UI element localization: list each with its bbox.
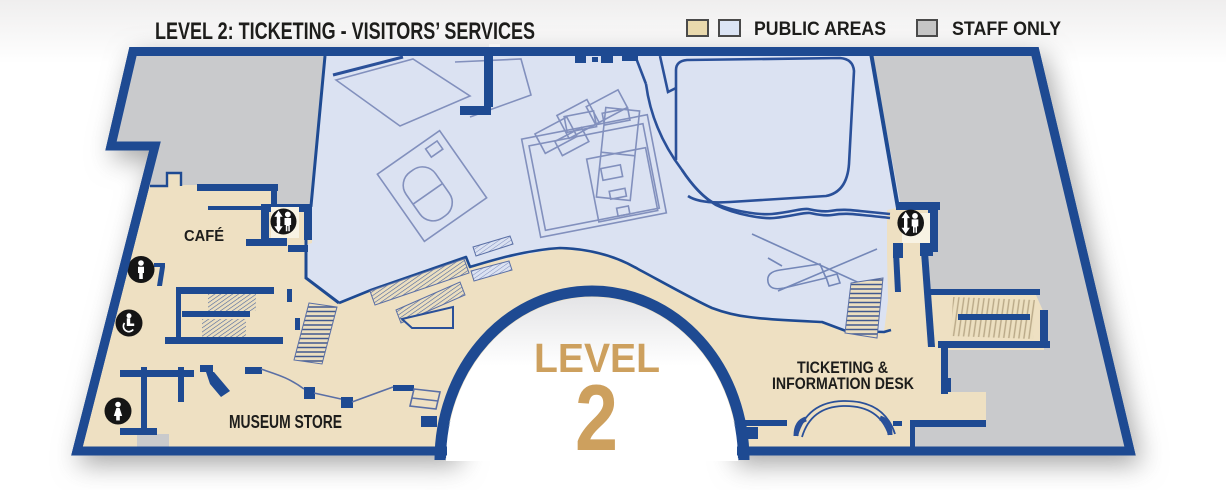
svg-text:MUSEUM STORE: MUSEUM STORE [229, 412, 342, 432]
svg-text:2: 2 [575, 365, 618, 470]
svg-text:INFORMATION DESK: INFORMATION DESK [772, 374, 915, 393]
svg-text:LEVEL 2: TICKETING - VISITORS’: LEVEL 2: TICKETING - VISITORS’ SERVICES [155, 18, 535, 45]
svg-text:CAFÉ: CAFÉ [184, 226, 224, 245]
svg-text:STAFF ONLY: STAFF ONLY [952, 18, 1061, 40]
svg-text:PUBLIC AREAS: PUBLIC AREAS [754, 18, 886, 40]
